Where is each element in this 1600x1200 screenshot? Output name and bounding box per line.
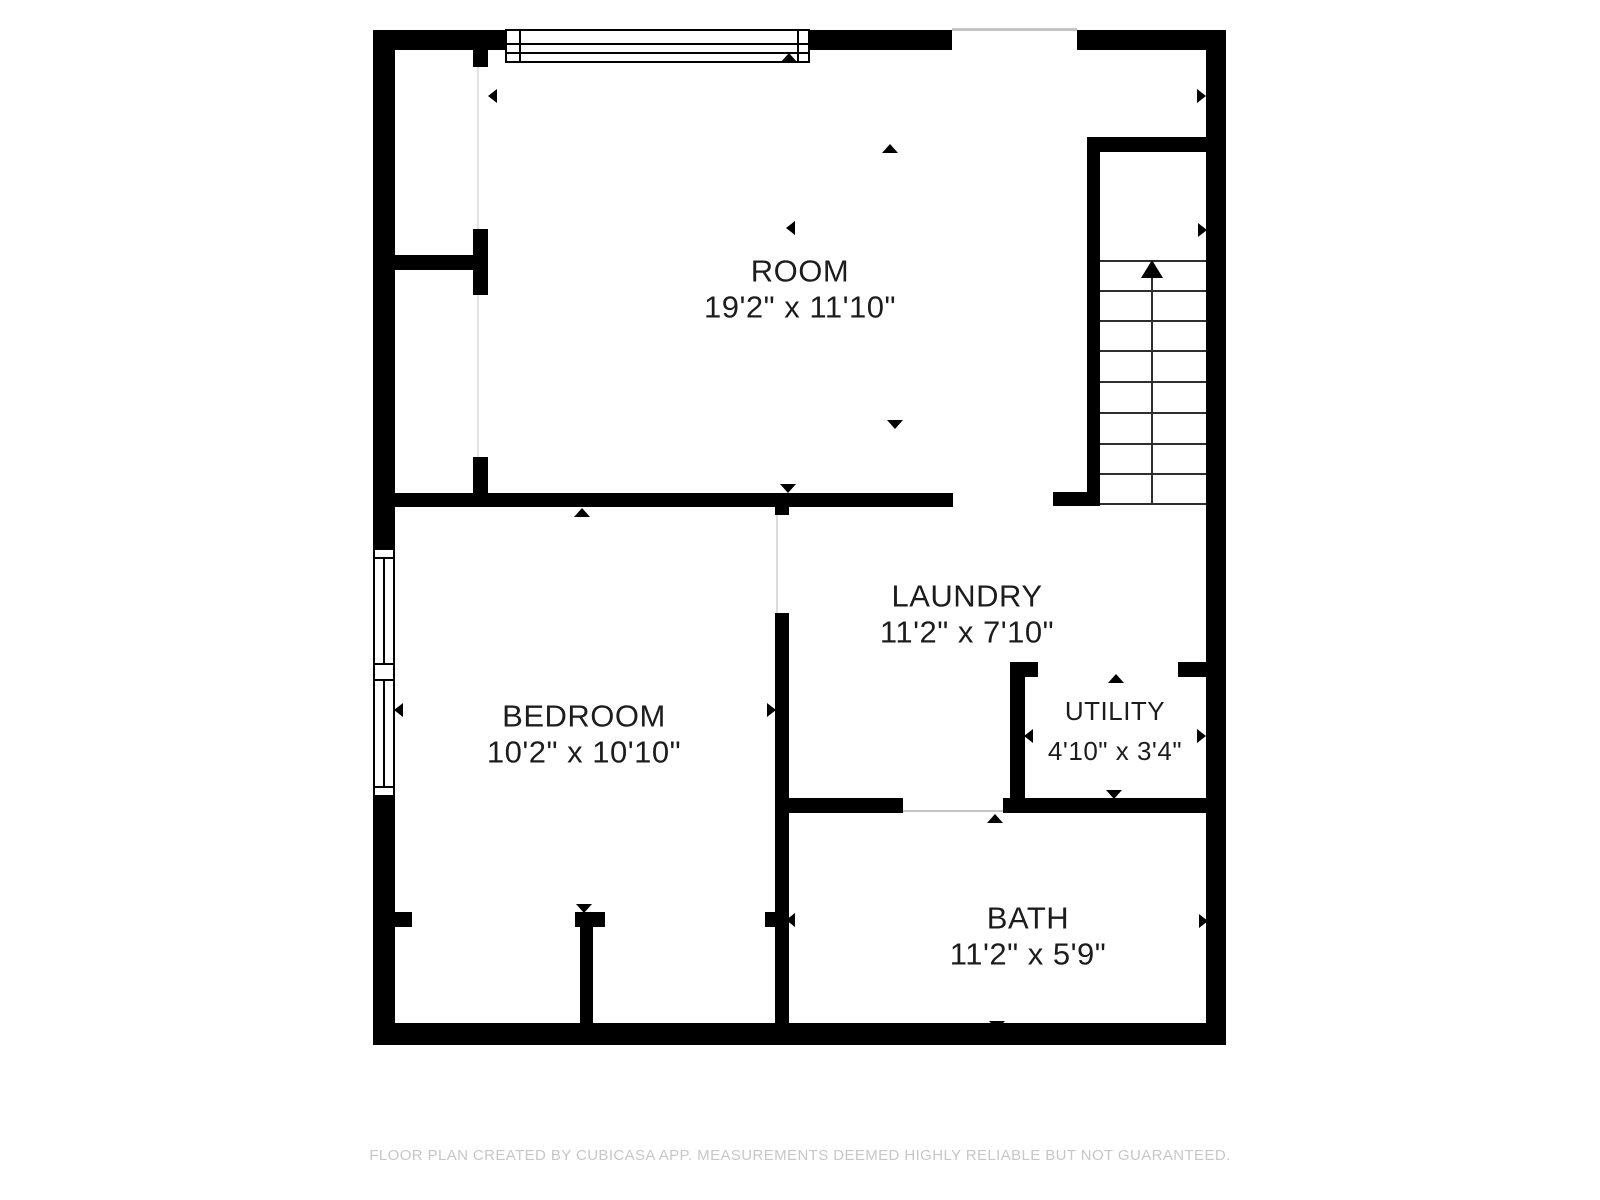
door-arrow bbox=[576, 904, 592, 913]
stair-tread bbox=[1100, 320, 1206, 322]
top-window-pane-line bbox=[505, 52, 810, 54]
wall bbox=[373, 1023, 1226, 1045]
door-arrow bbox=[786, 221, 795, 235]
top-window-pane-line bbox=[797, 29, 799, 63]
wall bbox=[1003, 798, 1206, 813]
wall bbox=[1077, 30, 1226, 50]
door-arrow bbox=[488, 89, 497, 103]
opening-line bbox=[952, 28, 1077, 31]
top-window-pane-line bbox=[505, 43, 810, 45]
footer-note: FLOOR PLAN CREATED BY CUBICASA APP. MEAS… bbox=[0, 1147, 1600, 1164]
door-arrow bbox=[1199, 914, 1208, 928]
room-dims-utility: 4'10" x 3'4" bbox=[1048, 738, 1182, 764]
left-window-pane-line bbox=[383, 681, 385, 788]
stairs-direction-arrow bbox=[1141, 260, 1163, 278]
stair-tread bbox=[1100, 290, 1206, 292]
stair-tread bbox=[1100, 381, 1206, 383]
door-arrow bbox=[1197, 729, 1206, 743]
room-label-bath: BATH bbox=[987, 903, 1069, 934]
door-arrow bbox=[1108, 674, 1124, 683]
opening-line bbox=[776, 515, 778, 613]
page: ROOM19'2" x 11'10"BEDROOM10'2" x 10'10"L… bbox=[0, 0, 1600, 1200]
room-label-bedroom: BEDROOM bbox=[502, 701, 666, 732]
wall bbox=[373, 30, 395, 550]
door-arrow bbox=[394, 703, 403, 717]
stair-center-line bbox=[1151, 276, 1153, 504]
wall bbox=[1100, 137, 1206, 152]
floor-plan: ROOM19'2" x 11'10"BEDROOM10'2" x 10'10"L… bbox=[0, 0, 1600, 1200]
wall bbox=[1178, 662, 1206, 677]
room-dims-laundry: 11'2" x 7'10" bbox=[880, 617, 1054, 648]
stair-tread bbox=[1100, 350, 1206, 352]
opening-line bbox=[903, 810, 1003, 812]
door-arrow bbox=[882, 144, 898, 153]
room-label-utility: UTILITY bbox=[1065, 698, 1165, 724]
door-arrow bbox=[989, 1021, 1005, 1030]
room-label-laundry: LAUNDRY bbox=[891, 581, 1042, 612]
wall bbox=[473, 457, 488, 493]
door-arrow bbox=[781, 53, 797, 62]
wall bbox=[473, 229, 488, 295]
wall bbox=[775, 507, 789, 515]
wall bbox=[473, 50, 488, 67]
wall bbox=[775, 613, 789, 1023]
wall bbox=[580, 927, 593, 1023]
room-dims-bath: 11'2" x 5'9" bbox=[950, 939, 1106, 970]
top-window-pane-line bbox=[519, 29, 521, 63]
wall bbox=[789, 798, 903, 813]
door-arrow bbox=[1106, 790, 1122, 799]
stair-tread bbox=[1100, 412, 1206, 414]
opening-line bbox=[477, 295, 479, 457]
door-arrow bbox=[987, 814, 1003, 823]
wall bbox=[395, 493, 953, 507]
wall bbox=[1087, 137, 1100, 505]
door-arrow bbox=[1024, 729, 1033, 743]
wall bbox=[393, 912, 412, 927]
wall bbox=[373, 30, 511, 50]
room-label-room: ROOM bbox=[751, 256, 849, 287]
wall bbox=[765, 912, 775, 927]
opening-line bbox=[477, 67, 479, 229]
stair-tread bbox=[1100, 503, 1206, 505]
door-arrow bbox=[1197, 89, 1206, 103]
wall bbox=[395, 255, 473, 270]
wall bbox=[1206, 30, 1226, 1045]
door-arrow bbox=[574, 508, 590, 517]
door-arrow bbox=[1198, 223, 1207, 237]
door-arrow bbox=[887, 420, 903, 429]
door-arrow bbox=[786, 913, 795, 927]
stair-tread bbox=[1100, 443, 1206, 445]
wall bbox=[810, 30, 952, 50]
wall bbox=[1010, 662, 1038, 677]
top-window bbox=[505, 29, 810, 63]
left-window-pane-line bbox=[383, 557, 385, 665]
room-dims-bedroom: 10'2" x 10'10" bbox=[487, 737, 681, 768]
door-arrow bbox=[767, 703, 776, 717]
wall bbox=[373, 795, 395, 1045]
room-dims-room: 19'2" x 11'10" bbox=[704, 292, 896, 323]
stair-tread bbox=[1100, 473, 1206, 475]
door-arrow bbox=[780, 484, 796, 493]
wall bbox=[575, 912, 605, 927]
